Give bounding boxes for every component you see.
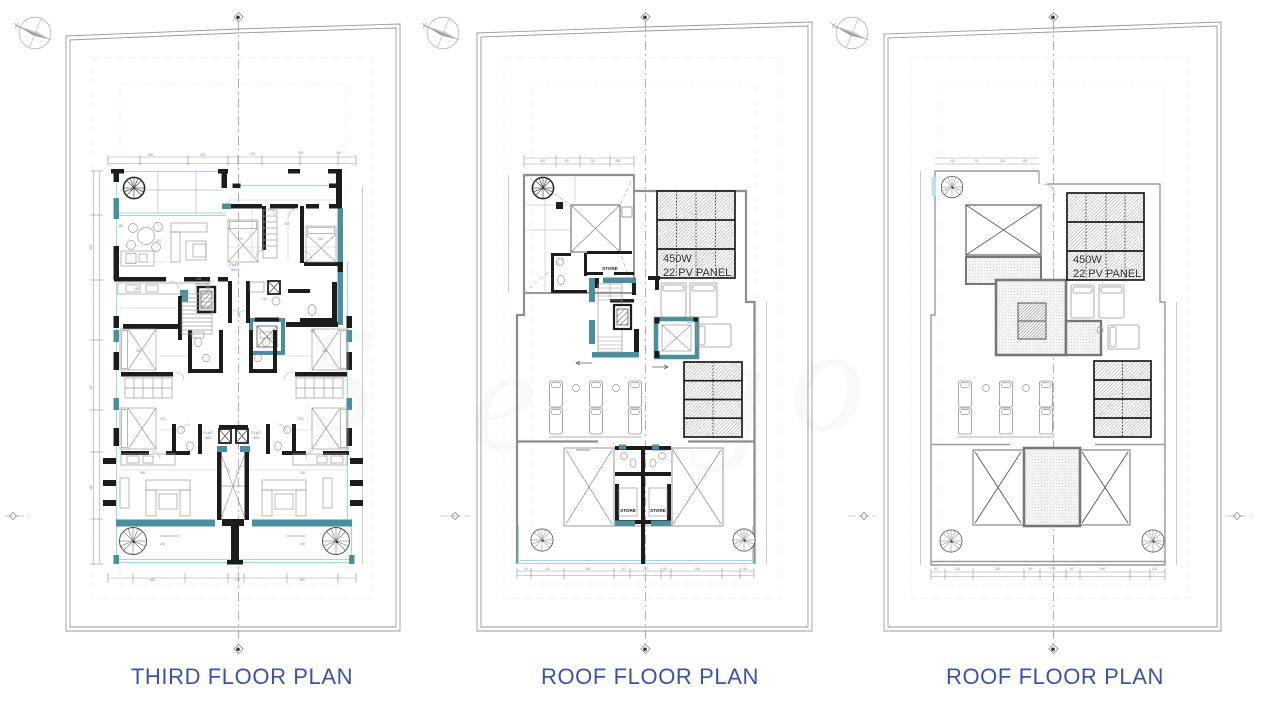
svg-text:268: 268 bbox=[196, 277, 202, 281]
svg-text:240: 240 bbox=[695, 567, 701, 571]
svg-text:315: 315 bbox=[284, 222, 290, 226]
svg-text:440: 440 bbox=[118, 224, 124, 228]
svg-text:40: 40 bbox=[524, 567, 528, 571]
svg-text:282: 282 bbox=[300, 471, 306, 475]
svg-text:242: 242 bbox=[310, 329, 316, 333]
svg-text:820: 820 bbox=[300, 578, 306, 582]
svg-text:THIRD FLOOR PLAN: THIRD FLOOR PLAN bbox=[131, 664, 353, 689]
svg-text:240: 240 bbox=[300, 542, 306, 546]
svg-text:60: 60 bbox=[1070, 567, 1074, 571]
svg-text:240: 240 bbox=[585, 567, 591, 571]
svg-text:240: 240 bbox=[995, 567, 1001, 571]
svg-text:170: 170 bbox=[643, 567, 649, 571]
svg-text:820: 820 bbox=[150, 578, 156, 582]
svg-text:240: 240 bbox=[318, 237, 324, 241]
svg-text:40: 40 bbox=[934, 567, 938, 571]
svg-text:170: 170 bbox=[235, 578, 241, 582]
svg-text:375: 375 bbox=[298, 417, 304, 421]
svg-text:270: 270 bbox=[238, 237, 244, 241]
svg-text:240: 240 bbox=[1100, 567, 1106, 571]
svg-text:22 PV PANEL: 22 PV PANEL bbox=[1073, 268, 1141, 280]
svg-text:o: o bbox=[790, 297, 865, 463]
svg-text:301: 301 bbox=[231, 267, 238, 272]
svg-text:22 PV PANEL: 22 PV PANEL bbox=[663, 267, 731, 279]
svg-text:110: 110 bbox=[742, 567, 747, 571]
svg-text:ROOF FLOOR PLAN: ROOF FLOOR PLAN bbox=[541, 664, 759, 689]
svg-text:303: 303 bbox=[253, 435, 260, 440]
svg-text:STORE: STORE bbox=[602, 266, 618, 271]
svg-text:282: 282 bbox=[89, 484, 93, 490]
svg-text:210: 210 bbox=[590, 159, 596, 163]
svg-text:375: 375 bbox=[160, 417, 166, 421]
svg-text:450W: 450W bbox=[663, 253, 692, 265]
svg-text:110: 110 bbox=[955, 567, 960, 571]
svg-text:110: 110 bbox=[1152, 567, 1157, 571]
svg-text:300: 300 bbox=[136, 349, 142, 353]
svg-text:453: 453 bbox=[615, 159, 621, 163]
svg-text:300: 300 bbox=[89, 244, 93, 250]
svg-text:60: 60 bbox=[1029, 567, 1033, 571]
svg-text:60: 60 bbox=[565, 159, 569, 163]
svg-text:410: 410 bbox=[950, 159, 956, 163]
svg-text:270: 270 bbox=[156, 239, 162, 243]
svg-text:110: 110 bbox=[545, 567, 550, 571]
svg-text:820: 820 bbox=[148, 153, 154, 157]
svg-text:302: 302 bbox=[205, 435, 212, 440]
svg-text:60: 60 bbox=[622, 567, 626, 571]
svg-text:210: 210 bbox=[1000, 159, 1006, 163]
svg-text:450W: 450W bbox=[1073, 254, 1102, 266]
svg-text:170: 170 bbox=[1050, 567, 1056, 571]
svg-text:282: 282 bbox=[134, 287, 140, 291]
svg-text:282: 282 bbox=[140, 471, 146, 475]
svg-text:390: 390 bbox=[298, 151, 304, 155]
svg-text:STORE: STORE bbox=[650, 508, 666, 513]
svg-text:300: 300 bbox=[322, 349, 328, 353]
svg-text:410: 410 bbox=[540, 159, 546, 163]
svg-text:e: e bbox=[470, 317, 537, 483]
svg-text:410: 410 bbox=[89, 384, 93, 390]
svg-text:160: 160 bbox=[336, 151, 342, 155]
svg-text:STORE: STORE bbox=[620, 508, 636, 513]
svg-text:453: 453 bbox=[1022, 159, 1028, 163]
svg-text:142: 142 bbox=[262, 297, 268, 301]
svg-text:60: 60 bbox=[663, 567, 667, 571]
svg-text:240: 240 bbox=[250, 152, 256, 156]
svg-text:300: 300 bbox=[200, 153, 206, 157]
svg-text:60: 60 bbox=[975, 159, 979, 163]
svg-text:240: 240 bbox=[160, 542, 166, 546]
svg-text:ROOF FLOOR PLAN: ROOF FLOOR PLAN bbox=[946, 664, 1164, 689]
